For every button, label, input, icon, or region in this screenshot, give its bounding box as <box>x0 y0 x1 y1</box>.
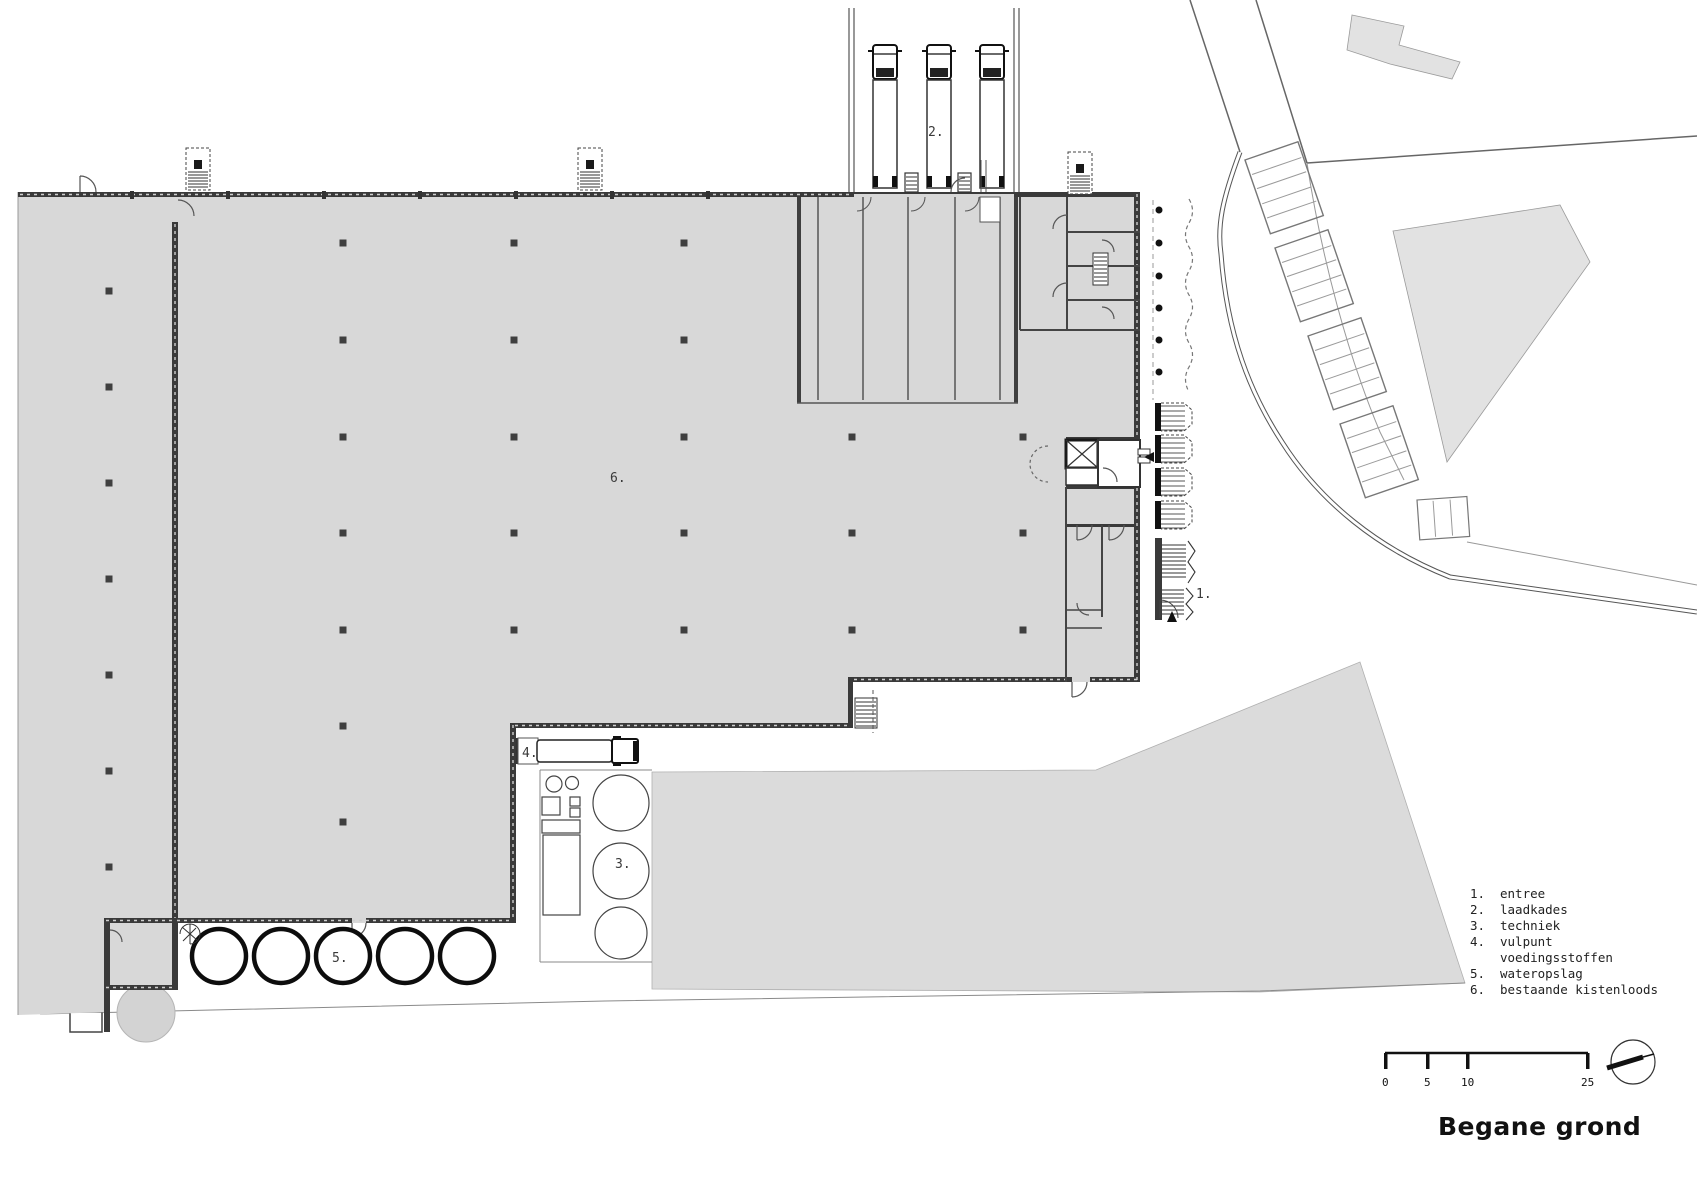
water-tank <box>254 929 308 983</box>
structural-column <box>511 627 518 634</box>
legend-label: bestaande kistenloods <box>1500 982 1658 997</box>
road-line-a <box>1190 0 1240 152</box>
legend-num: 6. <box>1470 982 1485 997</box>
legend-num: 1. <box>1470 886 1485 901</box>
legend: 1. entree 2. laadkades 3. techniek 4. vu… <box>1470 886 1658 997</box>
structural-column <box>849 434 856 441</box>
tree <box>117 984 175 1042</box>
techniek-area: 3. <box>540 770 652 962</box>
small-room-floor <box>110 923 172 985</box>
dock-wall-right <box>1014 197 1018 403</box>
truck4-wheel <box>613 762 621 766</box>
bike-rack <box>1155 468 1192 496</box>
water-tank <box>192 929 246 983</box>
facade-stair-box <box>1068 152 1092 194</box>
water-tanks: 5. <box>180 924 494 983</box>
structural-column <box>106 672 113 679</box>
facade-recess <box>980 197 1000 222</box>
road-line-e <box>1467 542 1697 585</box>
entrance-door-arc <box>1160 600 1178 618</box>
facade-stair-box <box>578 148 602 190</box>
structural-column <box>106 480 113 487</box>
structural-column <box>340 434 347 441</box>
legend-label: techniek <box>1500 918 1561 933</box>
structural-column <box>511 337 518 344</box>
north-arrow <box>1607 1040 1655 1084</box>
scale-bar: 0 5 10 25 <box>1382 1053 1594 1089</box>
notch-stair <box>855 690 877 733</box>
truck-icon <box>922 45 956 188</box>
legend-label: laadkades <box>1500 902 1568 917</box>
structural-column <box>1020 434 1027 441</box>
label-wateropslag: 5. <box>332 951 348 966</box>
wall-entrance-bar <box>1155 538 1162 620</box>
spiral-stair <box>180 924 200 944</box>
structural-column <box>340 819 347 826</box>
legend-num: 3. <box>1470 918 1485 933</box>
dock-bumper <box>958 173 971 192</box>
wall-top-dock <box>854 192 1014 194</box>
legend-label: voedingsstoffen <box>1500 950 1613 965</box>
structural-column <box>340 530 347 537</box>
structural-column <box>1020 530 1027 537</box>
neighbor-building-right <box>1393 205 1590 462</box>
truck-icon <box>975 45 1009 188</box>
water-tank <box>440 929 494 983</box>
wall-step-v1 <box>848 677 853 728</box>
dock-wall-left <box>797 197 801 403</box>
parking-bay <box>1275 230 1353 322</box>
parking-bay-small <box>1417 497 1470 540</box>
scale-tick-label: 0 <box>1382 1076 1389 1089</box>
scale-tick-label: 10 <box>1461 1076 1474 1089</box>
structural-column <box>1020 627 1027 634</box>
scale-tick-label: 5 <box>1424 1076 1431 1089</box>
entry-arrow-north <box>1167 611 1177 622</box>
truck-icon <box>868 45 902 188</box>
vulpunt-area: 4. <box>517 736 638 766</box>
truck4-wheel <box>613 736 621 740</box>
label-entree: 1. <box>1196 587 1212 602</box>
structural-column <box>681 530 688 537</box>
truck4-trailer <box>537 740 612 762</box>
road-line-b <box>1256 0 1307 163</box>
parking-bay <box>1245 142 1323 234</box>
wall-room-right <box>172 920 178 987</box>
dock-bumper <box>905 173 918 192</box>
wall-interior-left <box>172 222 178 920</box>
techniek-equipment <box>542 775 649 959</box>
label-kistenloods: 6. <box>610 471 626 486</box>
road-line-c <box>1307 136 1697 163</box>
scale-tick-label: 25 <box>1581 1076 1594 1089</box>
neighbor-building-top <box>1347 15 1460 79</box>
legend-num: 4. <box>1470 934 1485 949</box>
structural-column <box>106 768 113 775</box>
structural-column <box>681 627 688 634</box>
structural-column <box>106 576 113 583</box>
label-techniek: 3. <box>615 857 631 872</box>
structural-column <box>340 723 347 730</box>
entrance-steps <box>1162 541 1195 620</box>
legend-label: wateropslag <box>1500 966 1583 981</box>
bike-rack <box>1155 501 1192 529</box>
structural-column <box>849 530 856 537</box>
structural-column <box>340 627 347 634</box>
structural-column <box>340 240 347 247</box>
structural-column <box>681 337 688 344</box>
parking-bay <box>1340 406 1418 498</box>
wall-room-left <box>104 918 110 1032</box>
label-vulpunt: 4. <box>522 746 538 761</box>
structural-column <box>106 288 113 295</box>
stair-upper <box>1093 253 1108 285</box>
truck4-front <box>633 741 638 761</box>
structural-column <box>681 240 688 247</box>
floor-plan-canvas: 2. <box>0 0 1697 1200</box>
small-shed <box>70 1012 102 1032</box>
parking-bay <box>1308 318 1386 410</box>
structural-column <box>681 434 688 441</box>
bollard-dots <box>1156 207 1163 376</box>
legend-label: entree <box>1500 886 1545 901</box>
water-tank <box>378 929 432 983</box>
structural-column <box>849 627 856 634</box>
canopy-wavy-line <box>1186 199 1193 392</box>
structural-column <box>106 864 113 871</box>
structural-column <box>511 530 518 537</box>
label-laadkades: 2. <box>928 125 944 140</box>
structural-column <box>106 384 113 391</box>
structural-column <box>340 337 347 344</box>
legend-num: 2. <box>1470 902 1485 917</box>
legend-num: 5. <box>1470 966 1485 981</box>
double-door-leaf <box>1138 449 1150 455</box>
structural-column <box>511 434 518 441</box>
structural-column <box>511 240 518 247</box>
facade-stair-box <box>186 148 210 190</box>
bike-rack <box>1155 403 1192 431</box>
legend-label: vulpunt <box>1500 934 1553 949</box>
page-title: Begane grond <box>1438 1112 1641 1141</box>
bike-rack <box>1155 435 1192 463</box>
floor-plan-page: 2. <box>0 0 1697 1200</box>
